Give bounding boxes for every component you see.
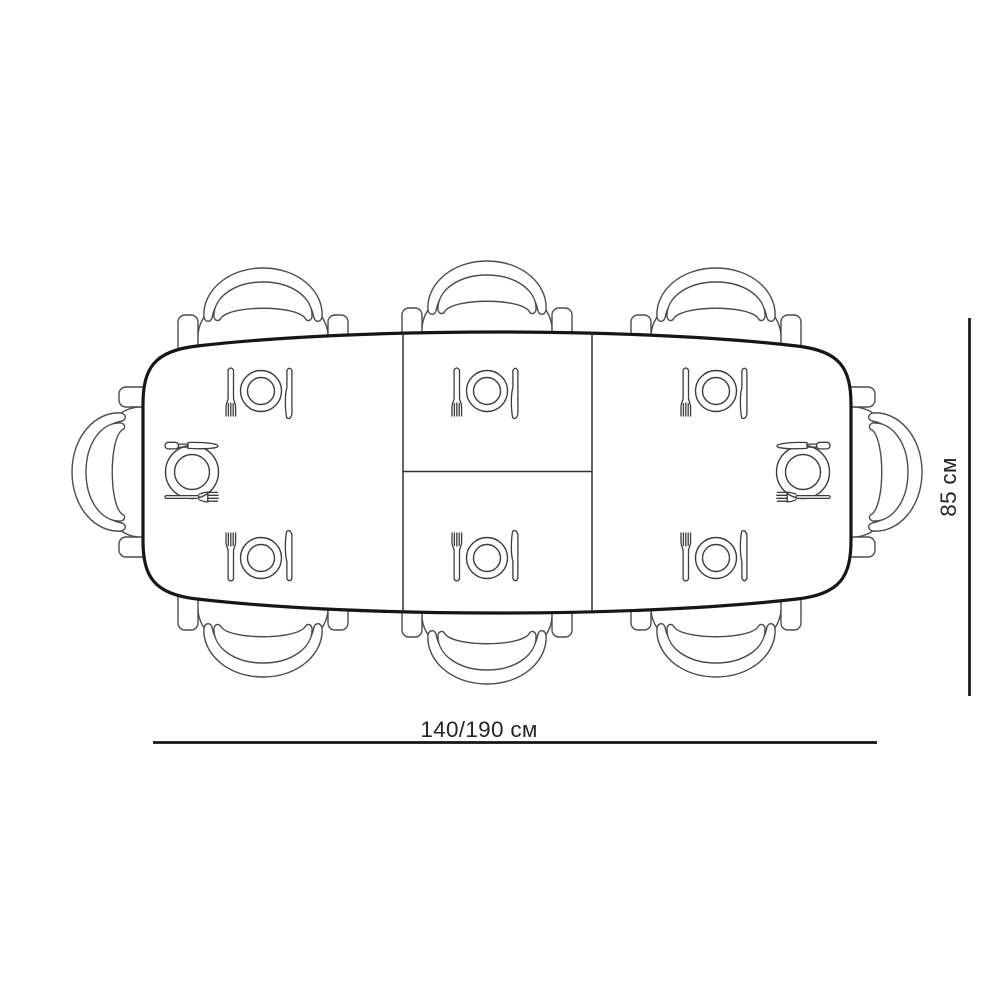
- diagram-canvas: 140/190 см 85 см: [0, 0, 1000, 1000]
- table-dimensions-diagram: 140/190 см 85 см: [0, 0, 1000, 1000]
- length-dimension-label: 140/190 см: [420, 717, 537, 742]
- width-dimension-label: 85 см: [936, 457, 961, 517]
